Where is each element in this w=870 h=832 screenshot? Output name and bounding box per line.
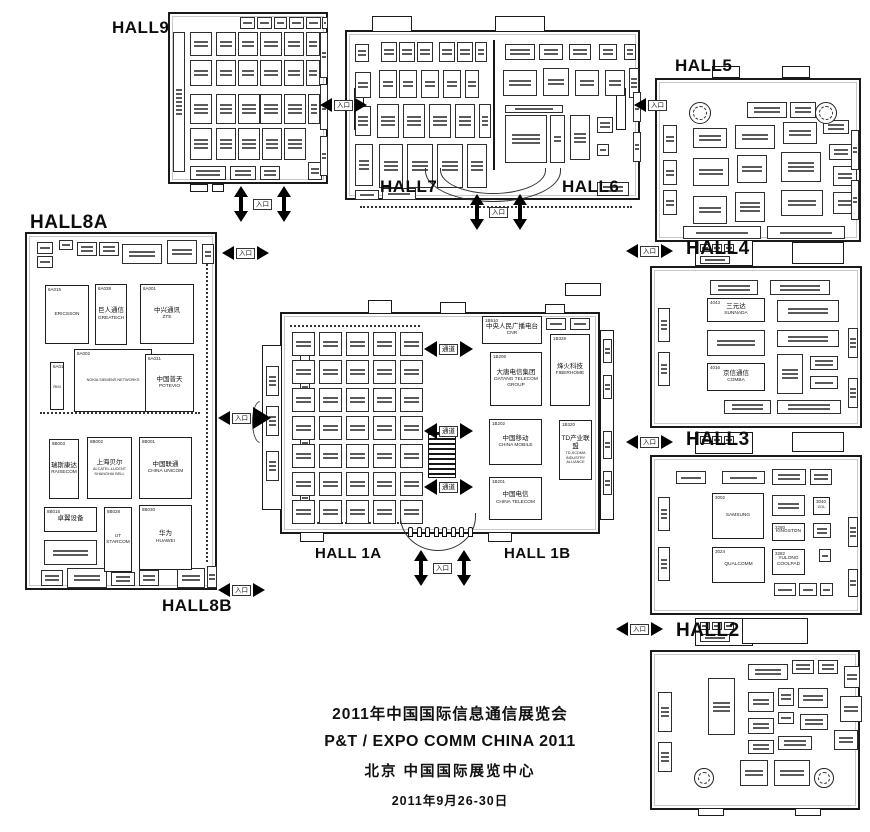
booth-cell (503, 70, 537, 96)
booth-nokia-siemens-networks: 8A002NOKIA SIEMENS NETWORKS (74, 349, 152, 412)
booth-cell (399, 70, 417, 98)
booth-cell (373, 360, 396, 384)
wall-structure (782, 66, 810, 78)
turnstile-icon (417, 527, 422, 537)
booth-cell (355, 190, 379, 200)
entrance-marker: 入口 (320, 98, 367, 112)
booth-cell (747, 102, 787, 118)
booth-cell (346, 360, 369, 384)
booth-yulong-coolpad: 3282YULONG COOLPAD (772, 549, 805, 575)
booth-cell (355, 44, 369, 62)
wall-structure (698, 808, 724, 816)
booth-cell (457, 42, 473, 62)
booth-cell (774, 760, 810, 786)
booth-number: 8B002 (90, 439, 103, 445)
arrow-icon (475, 203, 479, 221)
hall4-building: 4043三元达SUNNADA4016京信通信COMBA (650, 266, 862, 428)
wall-structure (372, 16, 412, 32)
hall6-label: HALL6 (562, 177, 619, 197)
booth-cell (605, 70, 625, 96)
booth-cell (778, 688, 794, 706)
booth-cell (41, 570, 63, 586)
booth-cell (257, 17, 272, 29)
booth-cell (603, 339, 612, 363)
booth-cell (260, 60, 282, 86)
booth-cell (693, 128, 727, 148)
booth-cell (443, 70, 461, 98)
booth-name-cn: 中国普天 (157, 376, 183, 384)
booth-cell (400, 388, 423, 412)
hall3-building: 3002SAMSUNG3024QUALCOMM3040ZOL3280KINGST… (650, 455, 862, 615)
booth-fiberhome: 1B328烽火科技FIBERHOME (550, 334, 590, 406)
booth-cell (190, 60, 212, 86)
booth-raisecom: 8B003瑞斯康达RAISECOM (49, 439, 79, 499)
hall9-label: HALL9 (112, 18, 169, 38)
booth-kingston: 3280KINGSTON (772, 523, 805, 541)
booth-cell (346, 472, 369, 496)
booth-number: 8B001 (142, 439, 155, 445)
booth-rim: 8A016RIM (50, 362, 64, 410)
booth-cell (848, 378, 858, 408)
booth-cell (260, 32, 282, 56)
entrance-marker: 入口 (222, 246, 269, 260)
booth-cell (546, 318, 566, 330)
booth-name-en: FIBERHOME (556, 371, 585, 377)
booth-cell (400, 416, 423, 440)
booth-cell (216, 60, 236, 86)
booth-cell (308, 94, 320, 124)
booth-cell (190, 128, 212, 160)
booth-name-cn: 中兴通讯 (154, 307, 180, 315)
arrow-icon (470, 194, 484, 230)
hall8b-label: HALL8B (162, 596, 232, 616)
booth-cell (77, 242, 97, 256)
booth-number: 3024 (715, 549, 725, 555)
booth-cell (658, 547, 670, 581)
booth-number: 8A002 (77, 351, 90, 357)
booth-cell (346, 500, 369, 524)
booth-cell (284, 128, 306, 160)
hall7-label: HALL7 (380, 177, 437, 197)
event-venue: 北京 中国国际展览中心 (290, 760, 610, 781)
booth-cell (834, 730, 858, 750)
booth-cell (658, 692, 672, 732)
booth-name-cn: 华为 (159, 530, 172, 538)
hall1a-label: HALL 1A (315, 545, 382, 562)
booth-cell (373, 388, 396, 412)
booth-cell (417, 42, 433, 62)
booth-cell (603, 471, 612, 495)
booth-cell (230, 166, 256, 180)
stair-circle-icon (689, 102, 711, 124)
booth-cell (813, 523, 831, 538)
booth-cell (569, 44, 591, 60)
booth-cell (479, 104, 491, 138)
booth-cell (543, 68, 569, 96)
booth-cell (781, 190, 823, 216)
booth-name-cn: 大唐电信集团 (497, 369, 536, 377)
arrow-icon (424, 341, 437, 357)
booth-number: 1B201 (492, 479, 505, 485)
booth-cell (177, 568, 205, 588)
marker-label: 通道 (439, 344, 458, 355)
booth-cell (207, 566, 217, 588)
booth-td-scdma-industry-alliance: 1B320TD产业联盟TD-SCDMA INDUSTRY ALLIANCE (559, 420, 592, 480)
booth-cell (505, 44, 535, 60)
booth-cell (266, 366, 279, 396)
booth-name-cn: 三元达 (726, 303, 746, 311)
booth-samsung: 3002SAMSUNG (712, 493, 764, 539)
event-title-cn: 2011年中国国际信息通信展览会 (290, 702, 610, 724)
booth-cell (289, 17, 304, 29)
booth-cell (748, 664, 788, 680)
entrance-marker-vertical: 入口 (470, 194, 527, 230)
booth-number: 8A015 (48, 287, 61, 293)
booth-cell (59, 240, 73, 250)
booth-cell (346, 388, 369, 412)
booth-name-en: YULONG COOLPAD (773, 556, 804, 568)
booth-cell (429, 104, 451, 138)
booth-cell (355, 72, 371, 98)
booth-cell (400, 332, 423, 356)
arrow-icon (222, 246, 234, 260)
booth-cell (772, 469, 806, 485)
booth-cell (292, 360, 315, 384)
booth-cell (693, 196, 727, 224)
booth-name-en: ALCATEL-LUCENT SHANGHAI BELL (88, 467, 131, 476)
booth-cell (403, 104, 425, 138)
booth-cell (373, 444, 396, 468)
booth-name-en: GREATECH (98, 316, 124, 322)
marker-label: 入口 (489, 207, 508, 218)
hall5-label: HALL5 (675, 56, 732, 76)
arrow-icon (634, 98, 646, 112)
booth-cell (319, 444, 342, 468)
booth-name-cn: 烽火科技 (557, 363, 583, 371)
booth-cell (708, 678, 735, 735)
booth-cell (658, 308, 670, 342)
booth-cell (260, 166, 280, 180)
wall-structure (300, 532, 324, 542)
booth-cell (373, 332, 396, 356)
booth-greatech: 8A038巨人通信GREATECH (95, 284, 127, 345)
event-dates: 2011年9月26-30日 (290, 790, 610, 809)
marker-label: 通道 (439, 426, 458, 437)
floorplan: 4043三元达SUNNADA4016京信通信COMBA 3002SAMSUNG3… (0, 0, 870, 832)
booth-zte: 8A001中兴通讯ZTE (140, 284, 194, 344)
booth-cell (810, 356, 838, 370)
booth-number: 8A016 (53, 364, 64, 370)
booth-cell (848, 328, 858, 358)
booth-cell (848, 569, 858, 597)
booth-cell (202, 244, 214, 264)
hall1-east-wing (600, 330, 614, 520)
booth-cell (800, 714, 828, 730)
arrow-icon (462, 559, 466, 577)
arrow-icon (282, 195, 286, 213)
hall8a-label: HALL8A (30, 212, 108, 234)
entrance-marker: 入口 (218, 407, 271, 429)
booth-cell (603, 375, 612, 399)
booth-name-cn: 瑞斯康达 (51, 462, 77, 470)
aisle-marker: 通道 (424, 423, 473, 439)
booth-cell (238, 128, 260, 160)
booth-cell (379, 70, 397, 98)
booth-huawei: 8B030华为HUAWEI (139, 505, 192, 570)
booth-cell (173, 32, 185, 172)
booth-cell (399, 42, 415, 62)
entrance-marker: 入口 (616, 622, 663, 636)
stair-circle-icon (814, 768, 834, 788)
wall-structure (792, 242, 844, 264)
booth-cell (505, 115, 547, 163)
arrow-icon (424, 479, 437, 495)
booth-cell (790, 102, 816, 118)
booth-name-en: NOKIA SIEMENS NETWORKS (87, 378, 140, 383)
booth-cell (284, 60, 304, 86)
booth-china-telecom: 1B201中国电信CHINA TELECOM (489, 477, 542, 520)
arrow-icon (218, 411, 230, 425)
arrow-icon (651, 622, 663, 636)
booth-number: 1B510 (485, 318, 498, 324)
booth-potevio: 8A031中国普天POTEVIO (145, 354, 194, 412)
booth-ericsson: 8A015ERICSSON (45, 285, 89, 344)
marker-label: 通道 (439, 482, 458, 493)
booth-cell (400, 444, 423, 468)
booth-cell (658, 742, 672, 772)
booth-name-cn: 京信通信 (723, 370, 749, 378)
dot-row (40, 412, 200, 414)
booth-name-en: ERICSSON (54, 312, 79, 318)
booth-name-en: QUALCOMM (724, 562, 752, 568)
arrow-icon (626, 244, 638, 258)
booth-cell (346, 444, 369, 468)
event-title-en: P&T / EXPO COMM CHINA 2011 (290, 733, 610, 751)
arrow-icon (424, 423, 437, 439)
booth-name-cn: 巨人通信 (98, 307, 124, 315)
booth-cell (748, 692, 774, 712)
booth-cell (710, 280, 758, 295)
booth-cell (122, 244, 162, 264)
booth-name-en: TD-SCDMA INDUSTRY ALLIANCE (560, 451, 591, 465)
booth-name-en: CNR (507, 331, 517, 337)
booth-cnr: 1B510中央人民广播电台CNR (482, 316, 542, 344)
booth-cell (319, 388, 342, 412)
booth-number: 1B328 (553, 336, 566, 342)
wall-structure (545, 304, 565, 314)
stair-circle-icon (815, 102, 837, 124)
booth-cell (767, 226, 845, 239)
booth-cell (798, 688, 828, 708)
booth-china-unicom: 8B001中国联通CHINA UNICOM (139, 437, 192, 499)
stair-circle-icon (694, 768, 714, 788)
booth-cell (306, 60, 320, 86)
booth-cell (781, 152, 821, 182)
arrow-icon (355, 98, 367, 112)
booth-cell (722, 471, 765, 484)
booth-comba: 4016京信通信COMBA (707, 363, 765, 391)
booth-zol: 3040ZOL (813, 497, 830, 515)
arrow-icon (460, 479, 473, 495)
marker-label: 入口 (232, 413, 251, 424)
dot-row (290, 325, 420, 327)
wall-structure (565, 283, 601, 296)
booth-cell (658, 352, 670, 386)
booth-number: 4043 (710, 300, 720, 306)
marker-label: 入口 (630, 624, 649, 635)
booth-cell (355, 144, 373, 186)
booth-cell (735, 125, 775, 149)
booth-cell (575, 70, 599, 96)
booth-number: 8A001 (143, 286, 156, 292)
arrow-icon (419, 559, 423, 577)
booth-name-en: SAMSUNG (726, 513, 750, 519)
booth-cell (851, 130, 859, 170)
booth-cell (67, 568, 107, 588)
booth-cell (737, 155, 767, 183)
booth-number: 8A031 (148, 356, 161, 362)
booth-cell (603, 431, 612, 459)
booth-number: 4016 (710, 365, 720, 371)
booth-cell (597, 144, 609, 156)
arrow-icon (277, 186, 291, 222)
booth-cell (663, 190, 677, 215)
wall-structure (368, 300, 392, 314)
entrance-marker-vertical: 入口 (234, 186, 291, 222)
aisle-marker: 通道 (424, 341, 473, 357)
booth-cell (777, 300, 839, 322)
entrance-marker-vertical: 入口 (414, 550, 471, 586)
wall-structure (488, 532, 512, 542)
booth-cell (810, 469, 832, 485)
booth-sunnada: 4043三元达SUNNADA (707, 298, 765, 322)
arrow-icon (253, 583, 265, 597)
booth-cell (292, 472, 315, 496)
booth-cell (707, 330, 765, 356)
booth-cell (190, 32, 212, 56)
booth-cell (505, 105, 563, 113)
booth-cell (167, 240, 197, 264)
booth-cell (829, 144, 853, 160)
booth-cell (633, 132, 641, 162)
booth-cell (676, 471, 706, 484)
booth-cell (216, 94, 236, 124)
booth-cell (770, 280, 830, 295)
booth-cell (820, 583, 833, 596)
booth-cell (292, 500, 315, 524)
booth-name-en: UT STARCOM (105, 534, 131, 546)
booth-cell (778, 736, 812, 750)
booth-cell (748, 718, 774, 734)
booth-cell (292, 416, 315, 440)
booth-number: 8A038 (98, 286, 111, 292)
booth-cell (292, 444, 315, 468)
booth-cell (792, 660, 814, 674)
booth-cell (44, 540, 97, 565)
aisle-marker: 通道 (424, 479, 473, 495)
dot-column (206, 252, 208, 562)
arrow-icon (661, 435, 673, 449)
booth-number: 3282 (775, 551, 785, 557)
booth-cell (400, 360, 423, 384)
booth-cell (37, 242, 53, 254)
booth-cell (799, 583, 817, 596)
turnstile-icon (442, 527, 447, 537)
booth-name-en: DATANG TELECOM GROUP (491, 377, 541, 389)
booth-cell (99, 242, 119, 256)
arrow-icon (320, 98, 332, 112)
hall1b-label: HALL 1B (504, 545, 571, 562)
booth-datang-telecom-group: 1B206大唐电信集团DATANG TELECOM GROUP (490, 352, 542, 406)
marker-label: 入口 (648, 100, 667, 111)
booth-cell (693, 158, 729, 186)
booth-cell (663, 160, 677, 185)
booth-cell (319, 500, 342, 524)
booth-cell (455, 104, 475, 138)
booth-name-en: ZTE (162, 315, 171, 321)
booth-cell (346, 332, 369, 356)
hall7-hall6-divider (493, 40, 495, 170)
marker-label: 入口 (236, 248, 255, 259)
booth-cell (319, 472, 342, 496)
booth-number: 8B030 (142, 507, 155, 513)
booth-name-cn: 上海贝尔 (97, 459, 123, 467)
turnstile-icon (408, 527, 413, 537)
arrow-icon (257, 246, 269, 260)
booth-cell (840, 696, 862, 722)
booth-cell (284, 94, 306, 124)
arrow-icon (239, 195, 243, 213)
booth-cell (724, 400, 771, 414)
booth-cell (663, 125, 677, 153)
turnstile-icon (451, 527, 456, 537)
booth-cell (783, 122, 817, 144)
booth-cell (735, 192, 765, 222)
entrance-marker: 入口 (634, 98, 667, 112)
booth-number: 8B003 (52, 441, 65, 447)
booth-name-en: RAISECOM (51, 470, 77, 476)
booth-cell (465, 70, 479, 98)
booth-cell (772, 495, 805, 516)
booth-cell (570, 115, 590, 160)
booth-name-cn: 中央人民广播电台 (486, 323, 538, 331)
arrow-icon (518, 203, 522, 221)
booth-qualcomm: 3024QUALCOMM (712, 547, 765, 583)
turnstile-icon (425, 527, 430, 537)
booth-cell (439, 42, 455, 62)
booth-cell (539, 44, 563, 60)
booth-cell (777, 330, 839, 347)
booth-number: 1B202 (492, 421, 505, 427)
hall9-building (168, 12, 328, 184)
wall-structure (190, 184, 208, 192)
booth-cell (373, 500, 396, 524)
booth-cell (624, 44, 636, 60)
booth-cell (844, 666, 860, 688)
turnstile-row (408, 527, 473, 537)
booth-number: 8B028 (107, 509, 120, 515)
booth-cell (216, 128, 236, 160)
booth-name-en: CHINA TELECOM (496, 500, 535, 506)
arrow-icon (460, 423, 473, 439)
booth-number: 1B206 (493, 354, 506, 360)
booth-name-en: COMBA (727, 378, 745, 384)
booth-cell (658, 497, 670, 531)
arrow-icon (626, 435, 638, 449)
hall8a-8b-building: 8A015ERICSSON8A038巨人通信GREATECH8A001中兴通讯Z… (25, 232, 217, 590)
arrow-icon (460, 341, 473, 357)
booth-alcatel-lucent-shanghai-bell: 8B002上海贝尔ALCATEL-LUCENT SHANGHAI BELL (87, 437, 132, 499)
